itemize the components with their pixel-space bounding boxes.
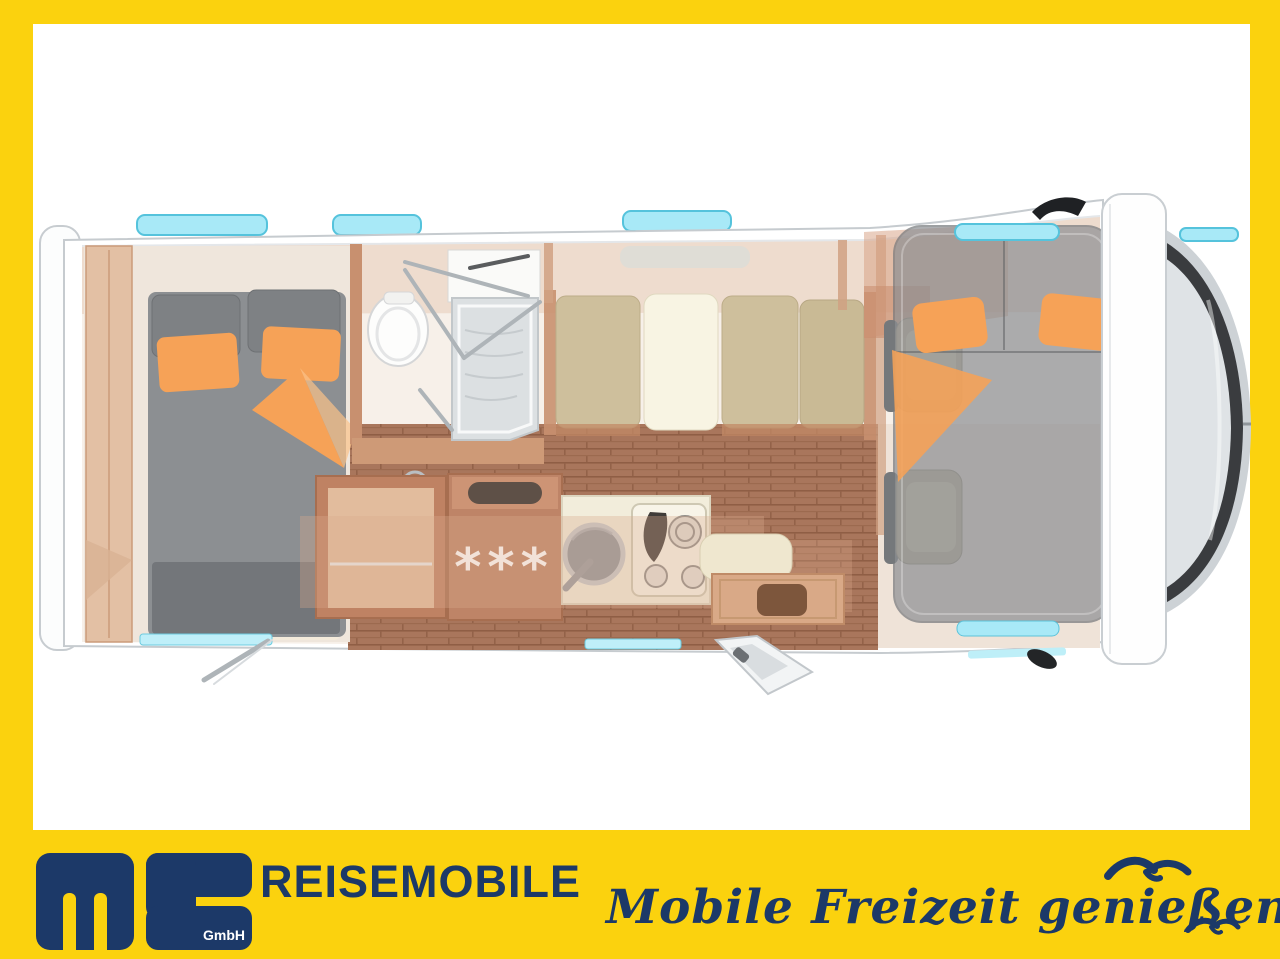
bench-seat-right: [722, 296, 798, 428]
ms-logo: GmbH: [0, 830, 260, 959]
logo-m-glyph: [36, 853, 134, 950]
interior: ***: [82, 216, 1115, 650]
bird-small-icon: [1188, 921, 1238, 933]
rv-floorplan-rendering: ***: [0, 0, 1280, 959]
dinette: [544, 290, 876, 440]
bench-seat-left: [556, 296, 640, 428]
logo-s-glyph: GmbH: [146, 853, 252, 950]
bird-large-icon: [1108, 861, 1188, 879]
brand-band: GmbH MS REISEMOBILE Mobile Freizeit geni…: [0, 830, 1280, 959]
shower-tray: [452, 298, 538, 440]
dinette-table: [644, 294, 718, 430]
nose-skylight: [1180, 228, 1238, 241]
cab-skylight: [955, 224, 1059, 240]
company-wordmark: REISEMOBILE: [260, 856, 581, 908]
cab-area: [864, 224, 1115, 622]
seagull-icons: [1090, 848, 1250, 953]
front-bed-panel: [1102, 194, 1166, 664]
logo-gmbh-label: GmbH: [203, 927, 245, 943]
advert-frame: ***: [0, 0, 1280, 959]
